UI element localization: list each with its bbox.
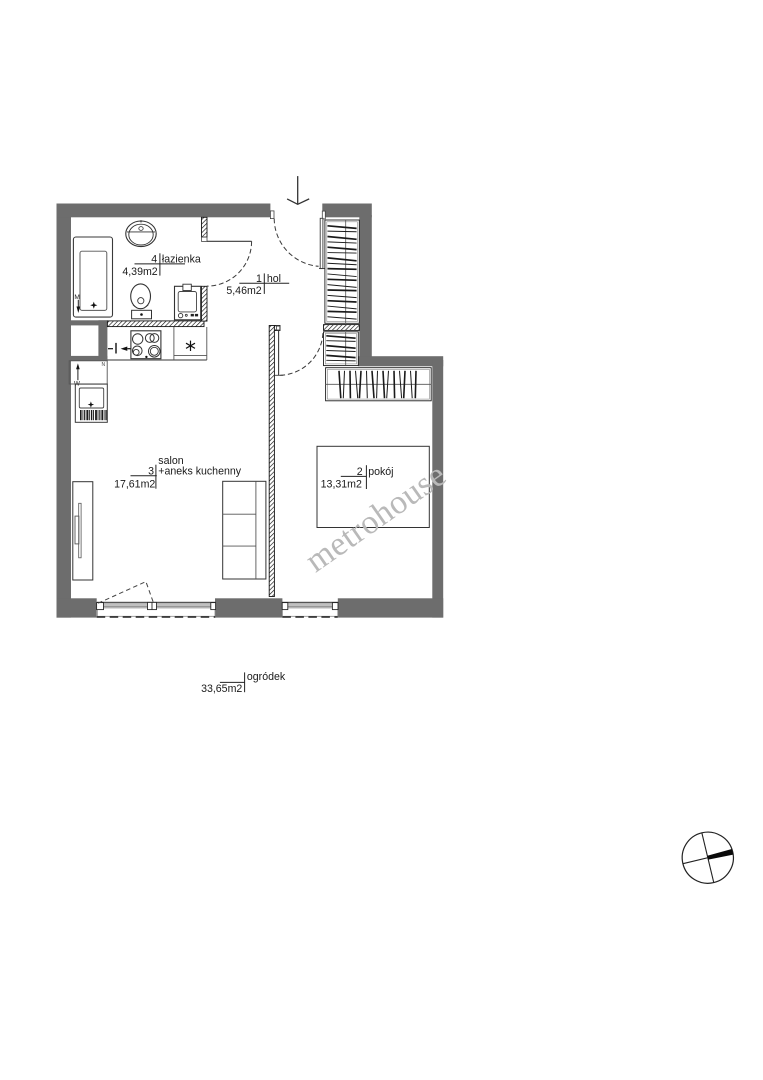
svg-text:N: N: [102, 362, 106, 368]
svg-text:13,31m2: 13,31m2: [321, 478, 362, 490]
svg-text:+aneks kuchenny: +aneks kuchenny: [158, 466, 241, 478]
svg-text:33,65m2: 33,65m2: [201, 683, 242, 695]
svg-text:ogródek: ogródek: [247, 671, 286, 683]
svg-text:pokój: pokój: [368, 466, 393, 478]
svg-text:5,46m2: 5,46m2: [226, 285, 261, 297]
svg-text:17,61m2: 17,61m2: [114, 479, 155, 491]
svg-text:M: M: [74, 294, 80, 301]
svg-text:4,39m2: 4,39m2: [122, 266, 157, 278]
